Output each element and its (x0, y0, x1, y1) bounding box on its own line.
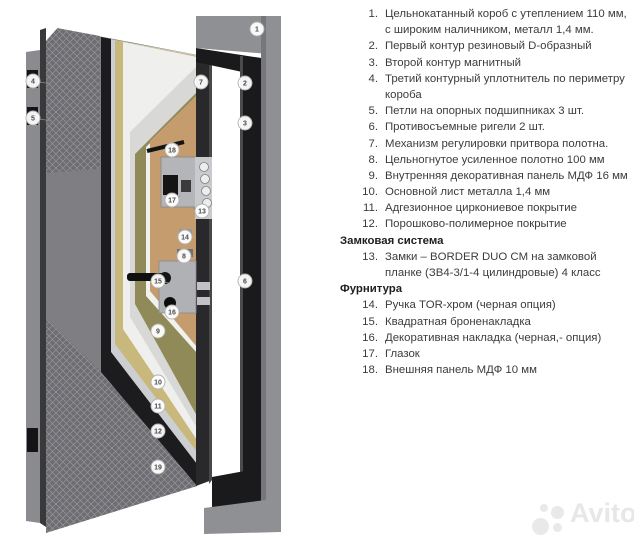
legend-item-number: 15. (340, 314, 385, 330)
callout-number: 18 (168, 147, 176, 154)
callout-number: 12 (154, 428, 162, 435)
legend-item: 14.Ручка TOR-хром (черная опция) (340, 297, 632, 313)
door-product-image: 12345671817131481516910111219 1.Цельнока… (0, 0, 634, 540)
callout-7: 7 (194, 75, 208, 89)
callout-number: 17 (168, 197, 176, 204)
callout-18: 18 (165, 143, 179, 157)
legend-item-text: Противосъемные ригели 2 шт. (385, 119, 632, 135)
legend-item-number: 9. (340, 168, 385, 184)
callout-number: 2 (243, 80, 247, 87)
callout-9: 9 (151, 324, 165, 338)
watermark-logo-circle (540, 504, 548, 512)
legend-item: 5.Петли на опорных подшипниках 3 шт. (340, 103, 632, 119)
hinge-bottom (27, 428, 38, 452)
legend-item-number: 11. (340, 200, 385, 216)
legend-item: 6.Противосъемные ригели 2 шт. (340, 119, 632, 135)
callout-8: 8 (177, 249, 191, 263)
legend-item-text: Декоративная накладка (черная,- опция) (385, 330, 632, 346)
legend-item-text: Замки – BORDER DUO CM на замковой планке… (385, 249, 632, 281)
legend-item-number: 2. (340, 38, 385, 54)
callout-number: 15 (154, 278, 162, 285)
legend-item-number: 17. (340, 346, 385, 362)
legend-item-number: 5. (340, 103, 385, 119)
legend-item: 8.Цельногнутое усиленное полотно 100 мм (340, 152, 632, 168)
legend-item-text: Основной лист металла 1,4 мм (385, 184, 632, 200)
legend-item-text: Внутренняя декоративная панель МДФ 16 мм (385, 168, 632, 184)
legend-item: 16.Декоративная накладка (черная,- опция… (340, 330, 632, 346)
legend-item-text: Внешняя панель МДФ 10 мм (385, 362, 632, 378)
legend-item-text: Порошково-полимерное покрытие (385, 216, 632, 232)
callout-6: 6 (238, 274, 252, 288)
watermark-text: Avito (570, 498, 634, 529)
legend-item: 4.Третий контурный уплотнитель по периме… (340, 71, 632, 103)
legend-item-number: 10. (340, 184, 385, 200)
legend-item-text: Третий контурный уплотнитель по периметр… (385, 71, 632, 103)
legend-section-header: Фурнитура (340, 281, 632, 297)
legend-item-text: Цельнокатанный короб с утеплением 110 мм… (385, 6, 632, 38)
rigel-bolt-2 (201, 175, 210, 184)
callout-12: 12 (151, 424, 165, 438)
legend-item: 13.Замки – BORDER DUO CM на замковой пла… (340, 249, 632, 281)
door-diagram: 12345671817131481516910111219 (0, 0, 340, 540)
legend-item: 11.Адгезионное циркониевое покрытие (340, 200, 632, 216)
wall-edge-dark (40, 28, 46, 527)
legend-item-number: 1. (340, 6, 385, 38)
callout-number: 13 (198, 208, 206, 215)
legend-item-number: 12. (340, 216, 385, 232)
legend-item-number: 16. (340, 330, 385, 346)
legend-item: 12.Порошково-полимерное покрытие (340, 216, 632, 232)
callout-11: 11 (151, 399, 165, 413)
watermark: Avito (524, 498, 634, 538)
legend-item-text: Петли на опорных подшипниках 3 шт. (385, 103, 632, 119)
callout-19: 19 (151, 460, 165, 474)
callout-number: 16 (168, 309, 176, 316)
legend-item-text: Второй контур магнитный (385, 55, 632, 71)
legend-item: 3.Второй контур магнитный (340, 55, 632, 71)
callout-number: 10 (154, 379, 162, 386)
legend-item: 2.Первый контур резиновый D-образный (340, 38, 632, 54)
legend-list: 1.Цельнокатанный короб с утеплением 110 … (340, 6, 632, 378)
rigel-bolt-3 (202, 187, 211, 196)
latch-bolt-2 (197, 297, 210, 305)
legend-item-text: Адгезионное циркониевое покрытие (385, 200, 632, 216)
legend-item-number: 4. (340, 71, 385, 103)
callout-16: 16 (165, 305, 179, 319)
legend-item-number: 6. (340, 119, 385, 135)
callout-number: 9 (156, 328, 160, 335)
legend-item: 1.Цельнокатанный короб с утеплением 110 … (340, 6, 632, 38)
legend-item-number: 3. (340, 55, 385, 71)
watermark-logo-circle (532, 518, 549, 535)
legend-item-number: 7. (340, 136, 385, 152)
callout-1: 1 (250, 22, 264, 36)
legend-item-number: 13. (340, 249, 385, 281)
callout-number: 19 (154, 464, 162, 471)
legend-item-text: Цельногнутое усиленное полотно 100 мм (385, 152, 632, 168)
callout-number: 4 (31, 78, 35, 85)
legend-item-text: Ручка TOR-хром (черная опция) (385, 297, 632, 313)
legend-item-text: Механизм регулировки притвора полотна. (385, 136, 632, 152)
lock-edge-highlight (209, 56, 212, 484)
callout-number: 1 (255, 26, 259, 33)
callout-number: 7 (199, 79, 203, 86)
legend-item-number: 8. (340, 152, 385, 168)
rigel-bolt-1 (200, 163, 209, 172)
legend-item: 7.Механизм регулировки притвора полотна. (340, 136, 632, 152)
frame-right-shade (261, 16, 266, 530)
callout-number: 6 (243, 278, 247, 285)
legend-item: 18.Внешняя панель МДФ 10 мм (340, 362, 632, 378)
legend-item: 9.Внутренняя декоративная панель МДФ 16 … (340, 168, 632, 184)
legend-item: 17.Глазок (340, 346, 632, 362)
callout-3: 3 (238, 116, 252, 130)
callout-number: 5 (31, 115, 35, 122)
legend-item-text: Первый контур резиновый D-образный (385, 38, 632, 54)
lock-body (163, 175, 178, 195)
callout-number: 11 (154, 403, 162, 410)
callout-10: 10 (151, 375, 165, 389)
legend-item: 10.Основной лист металла 1,4 мм (340, 184, 632, 200)
legend-item: 15.Квадратная броненакладка (340, 314, 632, 330)
legend-item-number: 18. (340, 362, 385, 378)
legend-item-text: Глазок (385, 346, 632, 362)
watermark-logo-circle (553, 523, 562, 532)
legend-item-number: 14. (340, 297, 385, 313)
legend-item-text: Квадратная броненакладка (385, 314, 632, 330)
legend-section-header: Замковая система (340, 233, 632, 249)
callout-2: 2 (238, 76, 252, 90)
lock-body-secondary (181, 180, 191, 192)
latch-bolt-1 (197, 282, 210, 290)
watermark-logo-circle (551, 506, 564, 519)
door-outer-panel-texture-top (46, 26, 100, 173)
callout-number: 8 (182, 253, 186, 260)
callout-number: 3 (243, 120, 247, 127)
callout-number: 14 (181, 234, 189, 241)
